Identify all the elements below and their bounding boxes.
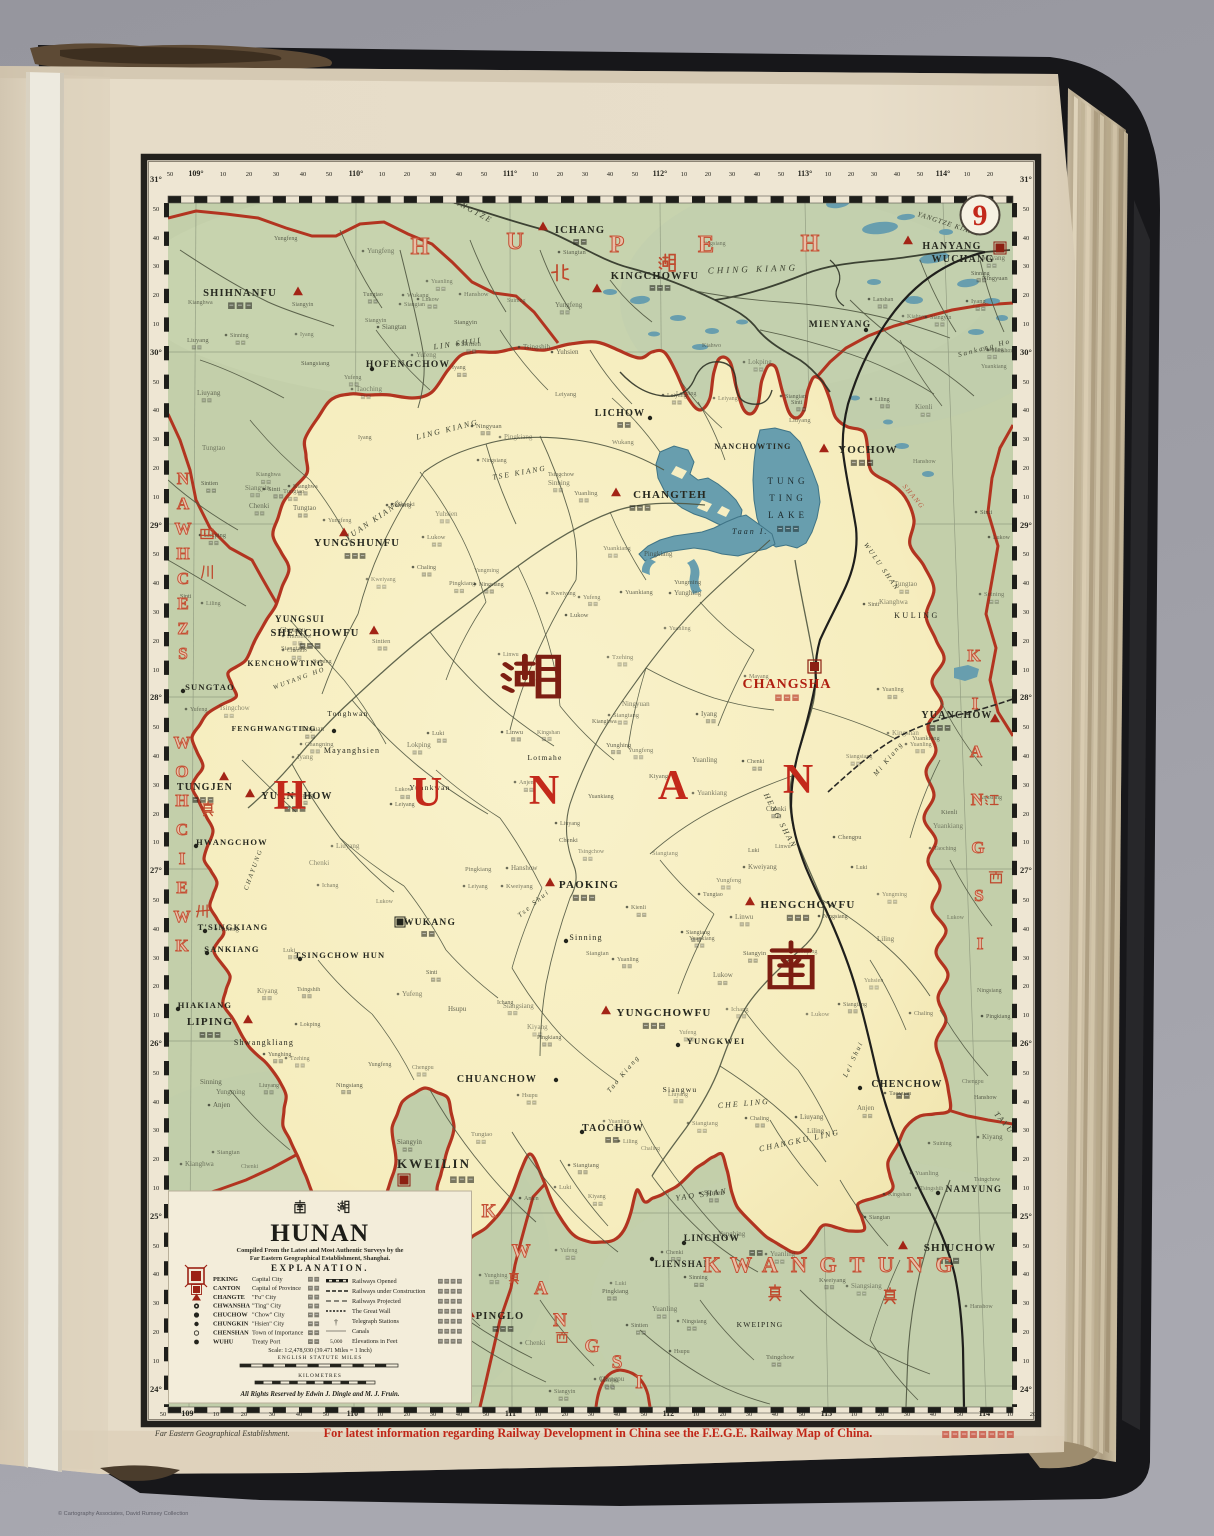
svg-text:CHANGTEH: CHANGTEH [633, 489, 707, 501]
svg-text:20: 20 [153, 292, 160, 299]
svg-text:PINGLO: PINGLO [476, 1311, 525, 1322]
svg-text:Tsingchow: Tsingchow [766, 1354, 795, 1361]
svg-text:Yuhsien: Yuhsien [435, 510, 458, 518]
svg-text:30: 30 [153, 436, 160, 443]
svg-text:Mayanghsien: Mayanghsien [324, 746, 380, 755]
svg-text:40: 40 [614, 1411, 621, 1418]
svg-text:KWEIPING: KWEIPING [737, 1320, 784, 1329]
svg-text:Siangtan: Siangtan [217, 1149, 240, 1156]
svg-text:Capital of Province: Capital of Province [252, 1285, 301, 1292]
svg-text:Sinti: Sinti [426, 970, 438, 976]
svg-text:Iyang: Iyang [297, 753, 313, 761]
svg-text:Yuanling: Yuanling [617, 957, 639, 963]
svg-text:Kingshan: Kingshan [537, 730, 560, 736]
svg-text:W: W [512, 1241, 531, 1262]
svg-text:Liling: Liling [877, 935, 895, 943]
svg-text:20: 20 [153, 811, 160, 818]
svg-text:Capital City: Capital City [252, 1276, 283, 1283]
svg-text:50: 50 [632, 171, 639, 178]
svg-text:Kiyang: Kiyang [588, 1194, 606, 1200]
svg-text:CHENCHOW: CHENCHOW [871, 1079, 942, 1090]
svg-text:Lukow: Lukow [376, 899, 394, 905]
svg-text:TUNG: TUNG [768, 476, 809, 486]
svg-text:Ningsiang: Ningsiang [682, 1319, 707, 1325]
svg-text:20: 20 [705, 171, 712, 178]
svg-text:CHUNGKIN: CHUNGKIN [213, 1321, 249, 1328]
svg-text:40: 40 [1023, 753, 1030, 760]
svg-text:HIAKIANG: HIAKIANG [178, 1000, 232, 1010]
svg-text:20: 20 [1023, 292, 1030, 299]
svg-text:Town of Importance: Town of Importance [252, 1329, 304, 1336]
svg-text:I: I [635, 1372, 642, 1393]
svg-text:Yufeng: Yufeng [583, 594, 600, 601]
svg-text:E: E [176, 878, 187, 897]
svg-text:Kiyang: Kiyang [527, 1023, 548, 1031]
svg-text:Siangtang: Siangtang [613, 712, 640, 719]
svg-text:26°: 26° [150, 1038, 162, 1048]
svg-text:N: N [791, 1252, 807, 1277]
svg-text:U: U [878, 1252, 894, 1277]
svg-text:Sinning: Sinning [548, 479, 570, 487]
svg-text:HWANGCHOW: HWANGCHOW [196, 837, 268, 847]
svg-text:"Hsien" City: "Hsien" City [252, 1321, 285, 1328]
svg-text:10: 10 [377, 1411, 384, 1418]
svg-text:Luki: Luki [559, 1184, 571, 1191]
svg-text:Kianghwa: Kianghwa [592, 719, 617, 725]
svg-text:50: 50 [153, 206, 160, 213]
svg-text:40: 40 [772, 1411, 779, 1418]
svg-text:Siangyin: Siangyin [292, 302, 313, 308]
svg-text:Yuanling: Yuanling [574, 490, 598, 497]
svg-text:Chaling: Chaling [750, 1116, 769, 1122]
svg-text:Yungfeng: Yungfeng [555, 301, 583, 309]
svg-text:30: 30 [1023, 1300, 1030, 1307]
svg-text:Pingkiang: Pingkiang [465, 866, 492, 873]
svg-text:40: 40 [607, 171, 614, 178]
svg-text:E: E [698, 232, 714, 258]
svg-text:50: 50 [641, 1411, 648, 1418]
svg-text:50: 50 [1023, 897, 1030, 904]
svg-text:20: 20 [1030, 1411, 1037, 1418]
svg-text:YUANCHOW: YUANCHOW [921, 710, 992, 721]
svg-text:E: E [177, 594, 188, 613]
svg-text:Yungming: Yungming [882, 892, 907, 898]
svg-text:Kienli: Kienli [631, 905, 646, 911]
svg-text:Sinti: Sinti [791, 400, 803, 406]
svg-text:S: S [612, 1352, 623, 1373]
svg-text:10: 10 [220, 171, 227, 178]
svg-text:Sinning: Sinning [569, 933, 602, 942]
svg-text:Pingkiang: Pingkiang [986, 1014, 1010, 1020]
svg-text:Wukang: Wukang [612, 439, 635, 446]
svg-text:EXPLANATION.: EXPLANATION. [271, 1263, 369, 1273]
svg-text:A: A [762, 1252, 778, 1277]
svg-text:Yuankiang: Yuankiang [603, 545, 632, 552]
svg-text:40: 40 [456, 1411, 463, 1418]
svg-text:Yufeng: Yufeng [344, 374, 361, 381]
svg-text:110°: 110° [347, 1409, 362, 1418]
svg-text:9: 9 [973, 199, 988, 232]
svg-text:10: 10 [1023, 667, 1030, 674]
svg-text:PAOKING: PAOKING [559, 879, 619, 891]
svg-text:50: 50 [326, 171, 333, 178]
svg-text:Yuankiang: Yuankiang [697, 789, 727, 797]
svg-text:29°: 29° [1020, 520, 1032, 530]
svg-text:Yuanling: Yuanling [652, 1305, 678, 1313]
svg-text:30°: 30° [150, 347, 162, 357]
svg-text:Ichang: Ichang [322, 883, 338, 889]
svg-text:Lukow: Lukow [811, 1011, 830, 1018]
svg-text:Lukow: Lukow [422, 297, 440, 303]
svg-text:20: 20 [153, 638, 160, 645]
svg-text:HENGCHOWFU: HENGCHOWFU [760, 899, 855, 911]
svg-text:Linwu: Linwu [506, 729, 524, 736]
svg-text:Ningyuan: Ningyuan [622, 700, 650, 708]
svg-text:10: 10 [532, 171, 539, 178]
svg-text:Luki: Luki [615, 1281, 627, 1287]
svg-text:50: 50 [481, 171, 488, 178]
svg-text:50: 50 [1023, 551, 1030, 558]
svg-text:K: K [175, 936, 189, 955]
svg-text:10: 10 [693, 1411, 700, 1418]
svg-text:Elevations in Feet: Elevations in Feet [352, 1338, 398, 1345]
svg-text:P: P [610, 232, 625, 258]
svg-text:Liuyang: Liuyang [560, 821, 580, 827]
svg-text:Yungming: Yungming [216, 1088, 246, 1096]
svg-text:40: 40 [153, 753, 160, 760]
svg-text:20: 20 [848, 171, 855, 178]
svg-text:110°: 110° [349, 169, 364, 178]
svg-text:10: 10 [213, 1411, 220, 1418]
svg-text:30: 30 [153, 782, 160, 789]
svg-text:Sintien: Sintien [631, 1323, 648, 1329]
svg-text:10: 10 [153, 1185, 160, 1192]
svg-text:10: 10 [153, 667, 160, 674]
svg-text:Liuyang: Liuyang [789, 417, 811, 424]
svg-text:Shwangkliang: Shwangkliang [234, 1038, 294, 1047]
svg-text:S: S [178, 644, 187, 663]
svg-text:10: 10 [153, 321, 160, 328]
svg-text:W: W [175, 519, 192, 538]
svg-text:C: C [177, 569, 189, 588]
svg-text:28°: 28° [1020, 692, 1032, 702]
svg-text:50: 50 [323, 1411, 330, 1418]
svg-text:10: 10 [153, 494, 160, 501]
svg-text:Sinning: Sinning [230, 333, 249, 339]
svg-text:40: 40 [1023, 1099, 1030, 1106]
svg-text:Scale: 1:2,478,930 (39.471 Mil: Scale: 1:2,478,930 (39.471 Miles = 1 Inc… [268, 1347, 372, 1354]
svg-text:Yuankiang: Yuankiang [689, 936, 715, 942]
svg-text:40: 40 [1023, 1271, 1030, 1278]
svg-text:SHENCHOWFU: SHENCHOWFU [270, 628, 359, 639]
svg-text:Ichang: Ichang [497, 1000, 513, 1006]
svg-text:Yuanling: Yuanling [431, 279, 453, 285]
svg-text:20: 20 [720, 1411, 727, 1418]
svg-text:50: 50 [160, 1411, 167, 1418]
svg-text:20: 20 [153, 1329, 160, 1336]
svg-text:113°: 113° [821, 1409, 836, 1418]
svg-text:40: 40 [1023, 235, 1030, 242]
svg-text:30: 30 [904, 1411, 911, 1418]
svg-text:20: 20 [1023, 638, 1030, 645]
svg-text:Sinning: Sinning [200, 1078, 222, 1086]
svg-text:Yuankiang: Yuankiang [912, 735, 941, 742]
svg-text:Siangtan: Siangtan [586, 950, 609, 957]
svg-text:Siangsiang: Siangsiang [846, 754, 872, 760]
svg-text:ICHANG: ICHANG [555, 225, 605, 236]
svg-text:LAKE: LAKE [768, 510, 808, 520]
svg-text:Yuanling: Yuanling [692, 756, 718, 764]
svg-text:109°: 109° [181, 1409, 196, 1418]
svg-text:Siangtang: Siangtang [843, 1002, 867, 1008]
svg-text:Lotmahe: Lotmahe [527, 753, 562, 762]
svg-text:KULING: KULING [894, 611, 940, 620]
svg-text:CHENSHAN: CHENSHAN [213, 1329, 249, 1336]
svg-text:Liuyang: Liuyang [259, 1083, 279, 1089]
svg-text:Liuyang: Liuyang [187, 337, 209, 344]
svg-text:50: 50 [1023, 1243, 1030, 1250]
svg-text:Liuyang: Liuyang [800, 1113, 824, 1121]
svg-text:Leiyang: Leiyang [667, 393, 687, 399]
svg-text:© Cartography Associates, Davi: © Cartography Associates, David Rumsey C… [58, 1510, 188, 1517]
svg-text:Yuanling: Yuanling [669, 626, 691, 632]
svg-text:50: 50 [778, 171, 785, 178]
svg-text:SANKIANG: SANKIANG [204, 944, 259, 954]
svg-text:20: 20 [987, 171, 994, 178]
svg-text:112°: 112° [653, 169, 668, 178]
svg-text:50: 50 [153, 551, 160, 558]
svg-text:30: 30 [1023, 782, 1030, 789]
svg-text:20: 20 [153, 983, 160, 990]
svg-text:Kweiyang: Kweiyang [748, 863, 777, 871]
svg-text:Ningsiang: Ningsiang [482, 458, 507, 464]
svg-text:O: O [175, 762, 188, 781]
svg-text:WUHU: WUHU [213, 1338, 234, 1345]
svg-text:10: 10 [825, 171, 832, 178]
svg-text:40: 40 [1023, 580, 1030, 587]
svg-text:Tungtao: Tungtao [363, 292, 383, 298]
svg-text:Hsupu: Hsupu [522, 1093, 538, 1099]
svg-text:T'SINGKIANG: T'SINGKIANG [198, 922, 269, 932]
svg-text:50: 50 [483, 1411, 490, 1418]
svg-text:N: N [553, 1310, 567, 1331]
svg-text:30: 30 [1023, 955, 1030, 962]
svg-text:Siangtang: Siangtang [652, 850, 679, 857]
svg-text:G: G [971, 838, 984, 857]
svg-text:28°: 28° [150, 692, 162, 702]
svg-text:Iyang: Iyang [701, 710, 717, 718]
svg-text:PEKING: PEKING [213, 1276, 238, 1283]
svg-text:I: I [972, 694, 979, 713]
svg-text:Tsingshih: Tsingshih [297, 987, 320, 993]
svg-text:31°: 31° [150, 174, 162, 184]
svg-text:Tungtao: Tungtao [293, 504, 317, 512]
svg-text:Chenki: Chenki [287, 648, 305, 654]
svg-text:HANYANG: HANYANG [922, 241, 981, 252]
svg-text:N: N [783, 757, 813, 803]
svg-text:50: 50 [1023, 1070, 1030, 1077]
svg-text:30: 30 [1023, 1127, 1030, 1134]
svg-text:20: 20 [241, 1411, 248, 1418]
svg-text:Liuyang: Liuyang [197, 389, 221, 397]
svg-text:Railways Projected: Railways Projected [352, 1298, 402, 1305]
svg-text:40: 40 [1023, 407, 1030, 414]
svg-text:C: C [176, 820, 188, 839]
svg-text:W: W [730, 1252, 752, 1277]
svg-text:Ningyuan: Ningyuan [476, 423, 502, 430]
svg-text:30: 30 [1023, 436, 1030, 443]
svg-text:Leiyang: Leiyang [718, 396, 738, 402]
svg-text:5,000: 5,000 [330, 1339, 343, 1345]
svg-text:Chenki: Chenki [559, 837, 578, 844]
svg-text:Suining: Suining [984, 591, 1005, 598]
svg-text:Hanshow: Hanshow [974, 1095, 997, 1101]
svg-text:50: 50 [153, 897, 160, 904]
svg-text:40: 40 [153, 407, 160, 414]
svg-text:ENGLISH STATUTE MILES: ENGLISH STATUTE MILES [278, 1355, 363, 1361]
svg-text:YOCHOW: YOCHOW [838, 444, 898, 456]
svg-text:50: 50 [799, 1411, 806, 1418]
svg-text:30: 30 [153, 263, 160, 270]
svg-text:Kianghwa: Kianghwa [188, 300, 213, 306]
svg-text:50: 50 [153, 724, 160, 731]
svg-text:Iyang: Iyang [300, 332, 314, 338]
svg-text:LIPING: LIPING [187, 1016, 233, 1028]
svg-text:Yungfeng: Yungfeng [368, 1061, 391, 1068]
svg-text:40: 40 [894, 171, 901, 178]
svg-text:Kiahwo: Kiahwo [907, 314, 926, 320]
svg-text:Yungming: Yungming [674, 579, 702, 586]
svg-text:40: 40 [153, 580, 160, 587]
svg-text:25°: 25° [1020, 1211, 1032, 1221]
svg-text:30: 30 [153, 1127, 160, 1134]
svg-text:Yungfeng: Yungfeng [716, 877, 742, 884]
svg-text:A: A [534, 1278, 548, 1299]
svg-text:40: 40 [754, 171, 761, 178]
svg-text:Lukow: Lukow [427, 534, 446, 541]
svg-text:NAMYUNG: NAMYUNG [946, 1184, 1002, 1194]
svg-text:Hanshow: Hanshow [464, 291, 489, 298]
svg-text:Chenki: Chenki [309, 859, 329, 867]
svg-text:Chenki: Chenki [747, 759, 765, 765]
svg-text:Yuanling: Yuanling [915, 1170, 939, 1177]
svg-text:YUNGCHOWFU: YUNGCHOWFU [616, 1007, 711, 1019]
svg-text:Yuankiang: Yuankiang [588, 794, 614, 800]
svg-text:Railways under Construction: Railways under Construction [352, 1288, 426, 1295]
svg-text:50: 50 [167, 171, 174, 178]
svg-text:WUCHANG: WUCHANG [932, 254, 995, 265]
svg-text:Siangsiang: Siangsiang [301, 360, 330, 367]
svg-text:KWEILIN: KWEILIN [397, 1156, 471, 1171]
svg-text:10: 10 [153, 839, 160, 846]
svg-text:Taan I.: Taan I. [732, 527, 768, 536]
svg-text:Siangtang: Siangtang [573, 1162, 600, 1169]
svg-text:50: 50 [917, 171, 924, 178]
svg-text:Yunghing: Yunghing [484, 1273, 507, 1279]
svg-text:HOFENGCHOW: HOFENGCHOW [366, 360, 450, 370]
svg-text:Yungming: Yungming [474, 568, 499, 574]
svg-text:20: 20 [562, 1411, 569, 1418]
svg-text:10: 10 [1023, 321, 1030, 328]
svg-text:Anjen: Anjen [524, 1196, 539, 1202]
svg-text:114°: 114° [979, 1409, 994, 1418]
svg-text:Yuhsien: Yuhsien [556, 348, 579, 356]
svg-text:"Ting" City: "Ting" City [252, 1303, 282, 1310]
svg-text:NANCHOWTING: NANCHOWTING [714, 442, 791, 451]
svg-text:MIENYANG: MIENYANG [809, 320, 872, 330]
svg-text:Anjen: Anjen [213, 1101, 231, 1109]
svg-text:10: 10 [964, 171, 971, 178]
svg-text:50: 50 [153, 1243, 160, 1250]
svg-text:109°: 109° [188, 169, 203, 178]
svg-text:Leiyang: Leiyang [555, 391, 577, 398]
svg-text:20: 20 [153, 1156, 160, 1163]
svg-text:Chenki: Chenki [249, 502, 269, 510]
svg-text:Yuanling: Yuanling [882, 687, 904, 693]
svg-text:Liling: Liling [206, 601, 221, 607]
svg-text:30: 30 [273, 171, 280, 178]
svg-text:Kweiyang: Kweiyang [371, 577, 396, 583]
svg-text:Tsingshih: Tsingshih [523, 343, 551, 351]
svg-text:Kianghwa: Kianghwa [185, 1160, 215, 1168]
svg-text:Pingkiang: Pingkiang [504, 433, 533, 441]
svg-text:Pingkiang: Pingkiang [644, 550, 673, 558]
svg-text:Lanshan: Lanshan [873, 297, 893, 303]
svg-text:Suining: Suining [507, 298, 526, 304]
svg-text:Hanshow: Hanshow [913, 459, 936, 465]
svg-text:Chenki: Chenki [525, 1339, 545, 1347]
svg-text:Lokping: Lokping [748, 358, 772, 366]
svg-text:Siangtan: Siangtan [563, 249, 586, 256]
svg-text:Siangtan: Siangtan [869, 1215, 890, 1221]
svg-text:Hsupu: Hsupu [448, 1005, 467, 1013]
svg-text:Yunghing: Yunghing [674, 589, 702, 597]
svg-text:Ningsiang: Ningsiang [336, 1082, 363, 1089]
svg-text:Pingkiang: Pingkiang [602, 1288, 629, 1295]
svg-text:20: 20 [1023, 1329, 1030, 1336]
svg-text:Kweiyang: Kweiyang [506, 883, 533, 890]
svg-text:Yuankiang: Yuankiang [625, 589, 654, 596]
svg-text:SHIHNANFU: SHIHNANFU [203, 288, 277, 299]
svg-text:Tungtao: Tungtao [471, 1131, 492, 1138]
svg-text:Chengpu: Chengpu [838, 834, 862, 841]
svg-text:Kiyang: Kiyang [982, 1133, 1003, 1141]
svg-text:Chaling: Chaling [641, 1146, 660, 1152]
svg-text:Siangyin: Siangyin [397, 1138, 422, 1146]
svg-text:40: 40 [456, 171, 463, 178]
svg-text:Ningsiang: Ningsiang [823, 914, 848, 920]
svg-text:Telegraph Stations: Telegraph Stations [352, 1318, 399, 1325]
svg-text:Kingshan: Kingshan [888, 1192, 911, 1198]
svg-text:25°: 25° [150, 1211, 162, 1221]
svg-text:20: 20 [153, 465, 160, 472]
svg-text:Yuankiang: Yuankiang [981, 364, 1007, 370]
svg-text:G: G [819, 1252, 836, 1277]
svg-text:All Rights Reserved by Edwin J: All Rights Reserved by Edwin J. Dingle a… [240, 1391, 400, 1398]
svg-text:Yufeng: Yufeng [679, 1029, 696, 1036]
svg-text:Compiled From the Latest and M: Compiled From the Latest and Most Authen… [237, 1247, 404, 1254]
svg-text:Chengpu: Chengpu [412, 1065, 434, 1071]
svg-text:Lokping: Lokping [407, 741, 431, 749]
svg-text:Yunghing: Yunghing [268, 1052, 291, 1058]
svg-text:Tzehing: Tzehing [612, 654, 634, 661]
svg-text:30: 30 [746, 1411, 753, 1418]
svg-text:40: 40 [296, 1411, 303, 1418]
svg-text:Yufeng: Yufeng [402, 990, 423, 998]
svg-text:TAOCHOW: TAOCHOW [582, 1123, 644, 1134]
svg-text:40: 40 [153, 926, 160, 933]
svg-text:24°: 24° [1020, 1384, 1032, 1394]
